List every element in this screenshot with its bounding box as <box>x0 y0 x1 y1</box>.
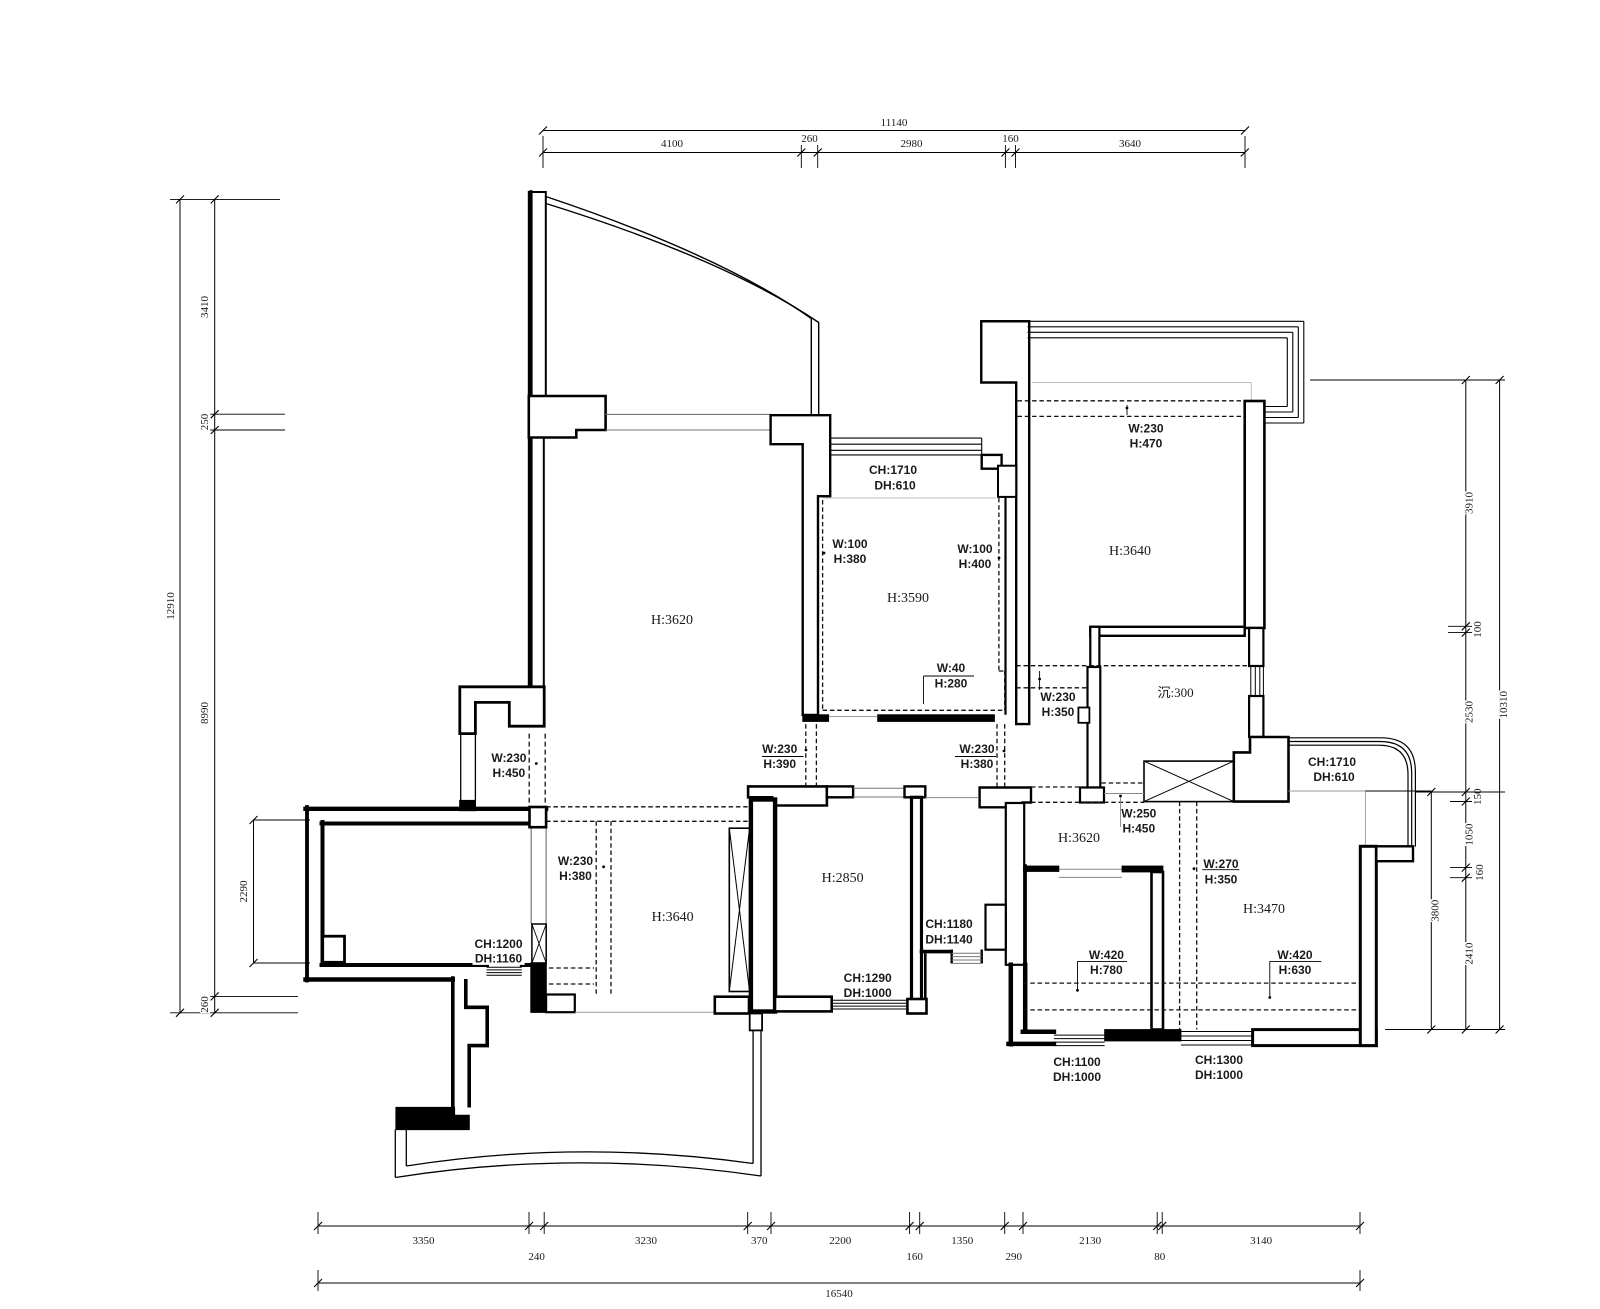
svg-text:H:400: H:400 <box>959 557 992 571</box>
svg-text:1350: 1350 <box>951 1235 974 1247</box>
svg-text:H:350: H:350 <box>1205 873 1238 887</box>
svg-text:2530: 2530 <box>1464 701 1476 724</box>
svg-text:80: 80 <box>1154 1251 1166 1263</box>
svg-text:240: 240 <box>528 1251 545 1263</box>
svg-text:CH:1300: CH:1300 <box>1195 1053 1243 1067</box>
svg-text:160: 160 <box>1002 133 1019 145</box>
svg-text:3910: 3910 <box>1464 492 1476 515</box>
svg-text:H:380: H:380 <box>961 757 994 771</box>
svg-text:3640: 3640 <box>1119 138 1142 150</box>
svg-text:2200: 2200 <box>829 1235 852 1247</box>
svg-text:250: 250 <box>199 413 211 430</box>
svg-text:3140: 3140 <box>1250 1235 1273 1247</box>
svg-text:2290: 2290 <box>238 880 250 903</box>
svg-text:CH:1710: CH:1710 <box>869 463 917 477</box>
svg-text:CH:1180: CH:1180 <box>925 917 973 931</box>
svg-text:H:450: H:450 <box>493 766 526 780</box>
svg-text:CH:1290: CH:1290 <box>844 971 892 985</box>
svg-text:12910: 12910 <box>165 592 177 620</box>
svg-text:100: 100 <box>1472 621 1484 638</box>
svg-text:H:470: H:470 <box>1130 437 1163 451</box>
svg-text:DH:1000: DH:1000 <box>1053 1070 1101 1084</box>
svg-text:W:230: W:230 <box>959 742 994 756</box>
svg-text:W:420: W:420 <box>1277 948 1312 962</box>
svg-text:H:3470: H:3470 <box>1243 902 1285 917</box>
svg-text:H:630: H:630 <box>1279 963 1312 977</box>
svg-text:1050: 1050 <box>1464 823 1476 846</box>
svg-text:W:230: W:230 <box>491 751 526 765</box>
svg-text:3800: 3800 <box>1430 899 1442 922</box>
svg-text:沉:300: 沉:300 <box>1158 685 1194 700</box>
svg-text:DH:1000: DH:1000 <box>844 986 892 1000</box>
svg-text:H:3640: H:3640 <box>652 910 694 925</box>
svg-text:DH:1000: DH:1000 <box>1195 1068 1243 1082</box>
svg-text:160: 160 <box>906 1251 923 1263</box>
svg-text:3410: 3410 <box>199 296 211 319</box>
svg-text:11140: 11140 <box>881 117 908 129</box>
svg-text:H:3590: H:3590 <box>887 591 929 606</box>
svg-text:DH:1160: DH:1160 <box>475 952 523 966</box>
svg-text:260: 260 <box>199 996 211 1013</box>
svg-text:W:250: W:250 <box>1121 807 1156 821</box>
svg-text:H:2850: H:2850 <box>822 871 864 886</box>
svg-text:H:380: H:380 <box>834 552 867 566</box>
svg-text:370: 370 <box>751 1235 768 1247</box>
svg-text:CH:1710: CH:1710 <box>1308 755 1356 769</box>
svg-text:H:450: H:450 <box>1122 822 1155 836</box>
svg-text:2130: 2130 <box>1079 1235 1102 1247</box>
svg-text:150: 150 <box>1472 788 1484 805</box>
svg-text:W:270: W:270 <box>1203 857 1238 871</box>
svg-text:2410: 2410 <box>1464 942 1476 965</box>
svg-text:H:3620: H:3620 <box>1058 831 1100 846</box>
svg-text:16540: 16540 <box>825 1288 853 1300</box>
svg-text:W:100: W:100 <box>832 537 867 551</box>
svg-text:W:420: W:420 <box>1089 948 1124 962</box>
svg-text:DH:610: DH:610 <box>1313 770 1355 784</box>
svg-text:160: 160 <box>1474 864 1486 881</box>
svg-text:260: 260 <box>801 133 818 145</box>
svg-text:H:390: H:390 <box>763 757 796 771</box>
svg-text:CH:1100: CH:1100 <box>1053 1055 1101 1069</box>
svg-text:10310: 10310 <box>1498 690 1510 718</box>
svg-text:W:40: W:40 <box>937 661 966 675</box>
svg-text:290: 290 <box>1006 1251 1023 1263</box>
svg-text:3350: 3350 <box>413 1235 436 1247</box>
svg-text:DH:610: DH:610 <box>874 479 916 493</box>
svg-text:W:230: W:230 <box>558 854 593 868</box>
svg-text:CH:1200: CH:1200 <box>474 937 522 951</box>
svg-text:W:230: W:230 <box>1040 690 1075 704</box>
svg-text:H:380: H:380 <box>559 869 592 883</box>
svg-text:2980: 2980 <box>901 138 924 150</box>
svg-text:4100: 4100 <box>661 138 684 150</box>
svg-text:H:350: H:350 <box>1042 705 1075 719</box>
svg-text:DH:1140: DH:1140 <box>925 933 973 947</box>
svg-text:3230: 3230 <box>635 1235 658 1247</box>
svg-text:W:230: W:230 <box>1128 422 1163 436</box>
svg-text:H:280: H:280 <box>935 677 968 691</box>
svg-text:8990: 8990 <box>199 702 211 725</box>
svg-text:W:100: W:100 <box>957 542 992 556</box>
svg-text:H:780: H:780 <box>1090 963 1123 977</box>
svg-text:H:3620: H:3620 <box>651 613 693 628</box>
svg-text:W:230: W:230 <box>762 742 797 756</box>
svg-text:H:3640: H:3640 <box>1109 544 1151 559</box>
